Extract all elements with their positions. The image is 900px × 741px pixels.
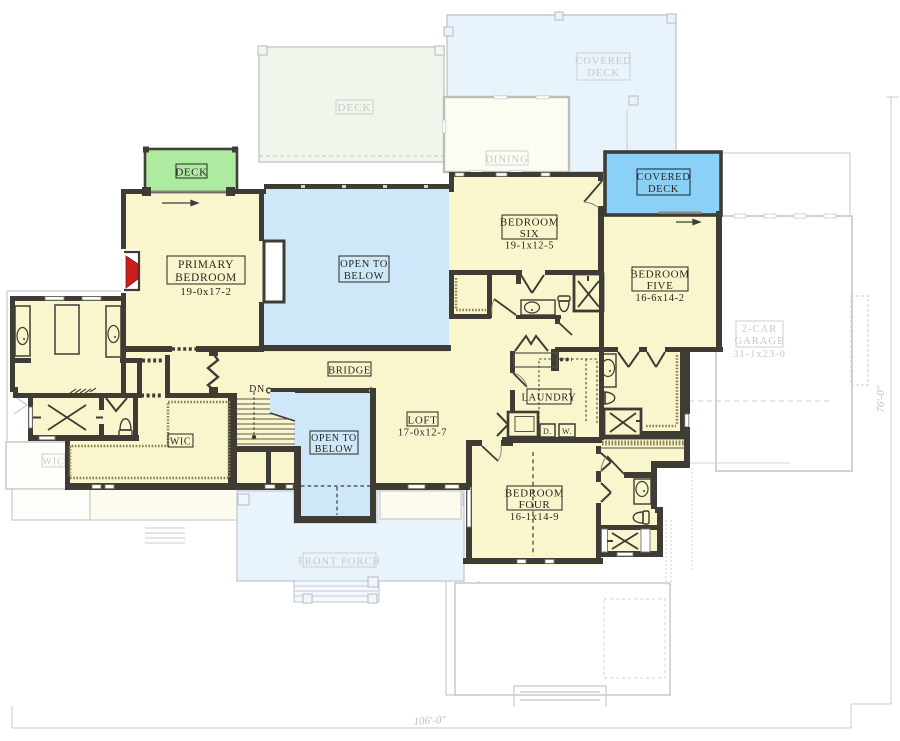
svg-text:19-1x12-5: 19-1x12-5: [505, 241, 554, 252]
svg-text:GARAGE: GARAGE: [735, 336, 785, 347]
svg-text:2-CAR: 2-CAR: [742, 324, 777, 335]
svg-text:WIC: WIC: [42, 457, 64, 468]
svg-text:76'-0": 76'-0": [875, 385, 887, 413]
svg-text:FOUR: FOUR: [519, 499, 551, 511]
svg-text:BELOW: BELOW: [315, 444, 354, 455]
svg-text:DECK: DECK: [648, 184, 679, 195]
svg-text:DECK: DECK: [175, 167, 207, 179]
svg-text:16-1x14-9: 16-1x14-9: [510, 512, 559, 523]
svg-text:FRONT PORCH: FRONT PORCH: [298, 557, 381, 568]
svg-text:BRIDGE: BRIDGE: [328, 366, 371, 377]
svg-text:OPEN TO: OPEN TO: [311, 433, 357, 444]
svg-text:31-1x23-0: 31-1x23-0: [733, 349, 786, 360]
svg-text:BEDROOM: BEDROOM: [500, 217, 559, 229]
svg-text:DECK: DECK: [587, 68, 620, 79]
svg-text:BEDROOM: BEDROOM: [175, 272, 237, 284]
svg-text:PRIMARY: PRIMARY: [178, 259, 234, 271]
svg-text:BEDROOM: BEDROOM: [630, 269, 689, 281]
svg-text:19-0x17-2: 19-0x17-2: [180, 286, 231, 298]
svg-text:OPEN TO: OPEN TO: [340, 259, 388, 270]
svg-text:BEDROOM: BEDROOM: [505, 488, 564, 500]
svg-text:DN: DN: [249, 384, 265, 395]
svg-text:106'-0": 106'-0": [413, 714, 447, 728]
svg-text:WIC: WIC: [170, 437, 191, 448]
svg-text:DINING: DINING: [485, 155, 528, 166]
svg-text:LOFT: LOFT: [408, 415, 438, 427]
svg-text:D.: D.: [543, 427, 552, 436]
svg-text:W.: W.: [562, 427, 572, 436]
svg-text:16-6x14-2: 16-6x14-2: [635, 293, 684, 304]
svg-text:BELOW: BELOW: [344, 271, 384, 282]
svg-text:COVERED: COVERED: [637, 172, 691, 183]
svg-text:17-0x12-7: 17-0x12-7: [398, 428, 447, 439]
svg-text:SIX: SIX: [520, 228, 540, 240]
svg-text:LAUNDRY: LAUNDRY: [522, 393, 577, 404]
svg-text:FIVE: FIVE: [647, 280, 674, 292]
svg-text:DECK: DECK: [338, 102, 372, 114]
svg-text:COVERED: COVERED: [575, 56, 632, 67]
